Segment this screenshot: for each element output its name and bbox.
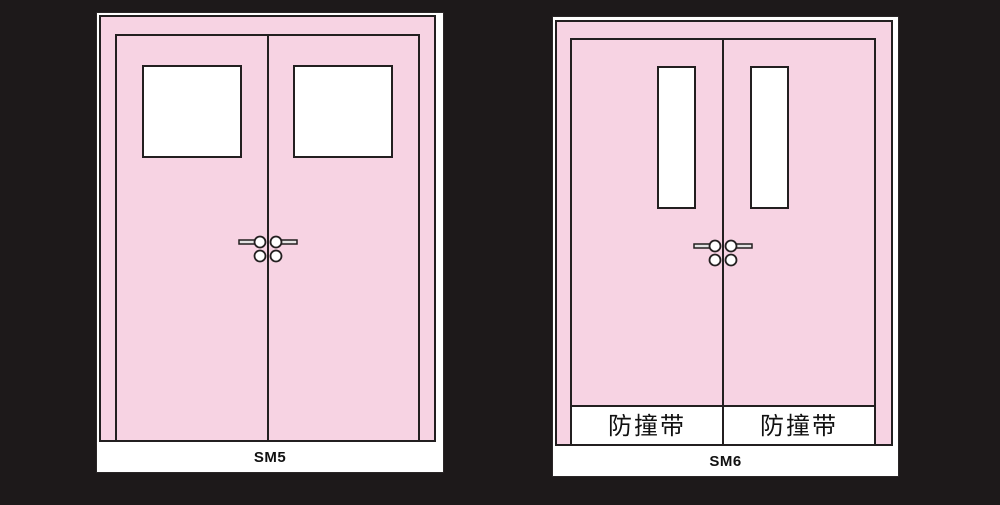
kick-strip-label: 防撞带 (608, 414, 686, 438)
door-frame: 防撞带 防撞带 (555, 20, 893, 446)
vision-window (142, 65, 242, 158)
panel-label: SM6 (553, 446, 898, 476)
door-leaf-left (117, 36, 267, 440)
panel-label: SM5 (97, 442, 443, 472)
door-diagram-sm6: 防撞带 防撞带 SM6 (553, 17, 898, 476)
kick-strip: 防撞带 (572, 405, 722, 444)
door-leaf-right: 防撞带 (722, 40, 874, 444)
door-pair: 防撞带 防撞带 (570, 38, 876, 444)
kick-strip-label: 防撞带 (760, 414, 838, 438)
door-leaf-right (267, 36, 419, 440)
door-pair (115, 34, 420, 440)
vision-window (657, 66, 696, 209)
door-leaf-left: 防撞带 (572, 40, 722, 444)
kick-strip: 防撞带 (724, 405, 874, 444)
vision-window (293, 65, 393, 158)
vision-window (750, 66, 789, 209)
door-diagram-sm5: SM5 (97, 13, 443, 472)
door-frame (99, 15, 436, 442)
